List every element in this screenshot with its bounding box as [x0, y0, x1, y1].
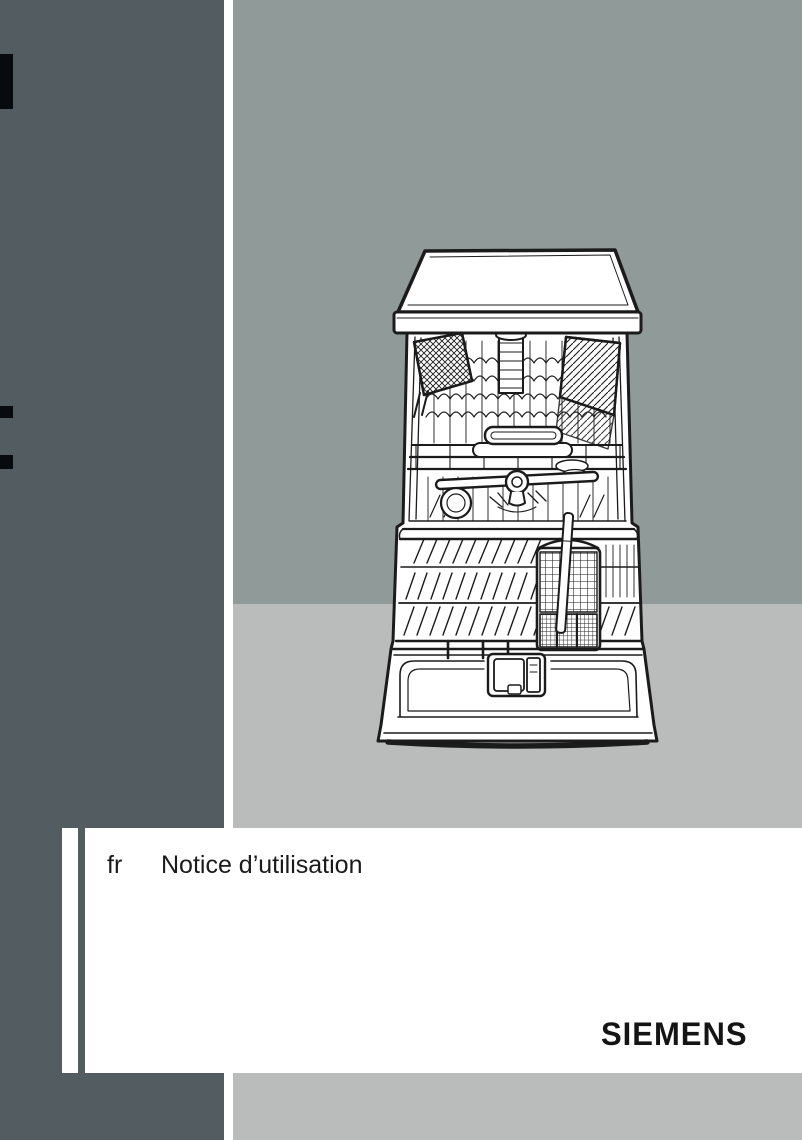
manual-cover-page: fr Notice d’utilisation SIEMENS: [0, 0, 802, 1140]
dishwasher-illustration: [370, 245, 670, 750]
document-title: Notice d’utilisation: [161, 851, 363, 879]
crop-mark-lower: [0, 455, 13, 469]
crop-mark-top: [0, 54, 13, 109]
brand-logo: SIEMENS: [601, 1017, 747, 1052]
crop-mark-middle: [0, 406, 13, 418]
title-band-rule: [78, 828, 85, 1073]
language-code: fr: [107, 851, 122, 879]
